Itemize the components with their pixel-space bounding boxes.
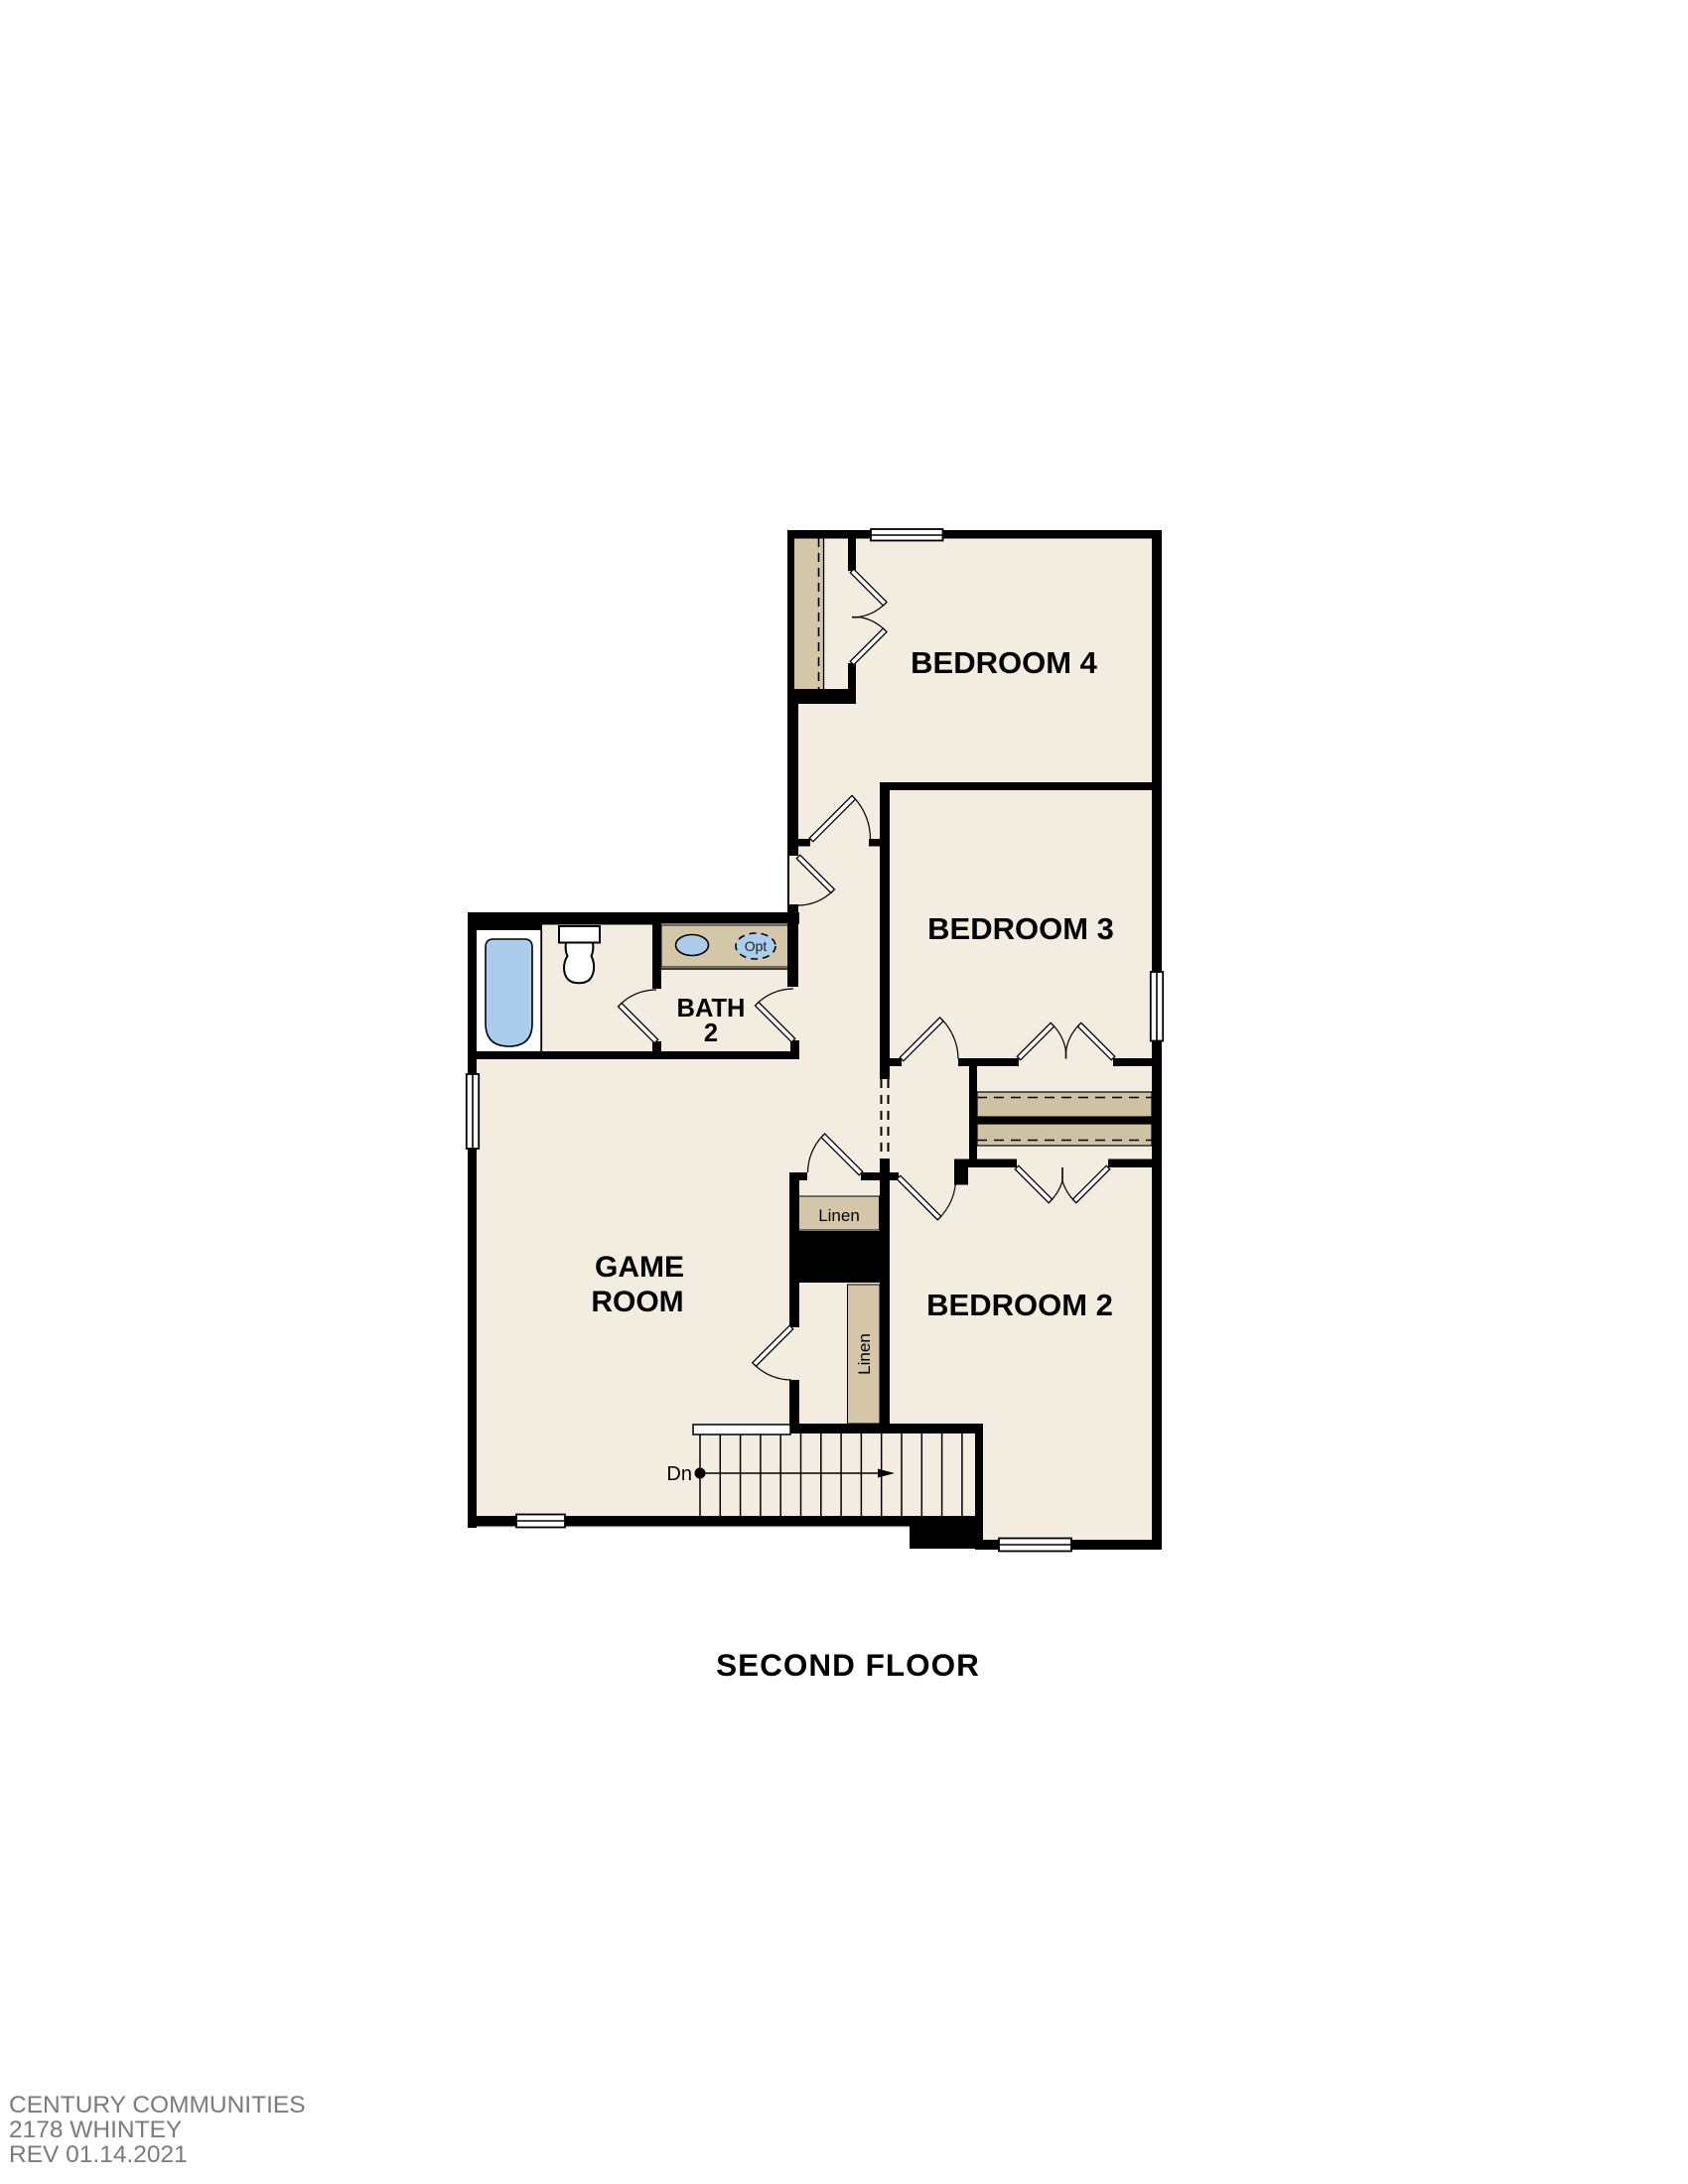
svg-text:2178 WHINTEY: 2178 WHINTEY [9, 2116, 182, 2143]
svg-text:2: 2 [704, 1020, 718, 1047]
svg-text:SECOND FLOOR: SECOND FLOOR [716, 1647, 980, 1683]
svg-text:Linen: Linen [818, 1206, 860, 1225]
svg-text:REV 01.14.2021: REV 01.14.2021 [9, 2141, 188, 2168]
svg-text:Dn: Dn [666, 1463, 692, 1485]
svg-text:BEDROOM 4: BEDROOM 4 [911, 645, 1098, 680]
svg-text:BATH: BATH [677, 995, 746, 1023]
svg-text:GAME: GAME [595, 1251, 684, 1284]
svg-text:BEDROOM 2: BEDROOM 2 [926, 1288, 1113, 1322]
svg-text:ROOM: ROOM [591, 1286, 683, 1318]
svg-text:Linen: Linen [855, 1333, 874, 1375]
svg-text:Opt: Opt [745, 938, 768, 954]
svg-text:CENTURY COMMUNITIES: CENTURY COMMUNITIES [9, 2092, 306, 2118]
svg-text:BEDROOM 3: BEDROOM 3 [927, 911, 1114, 946]
